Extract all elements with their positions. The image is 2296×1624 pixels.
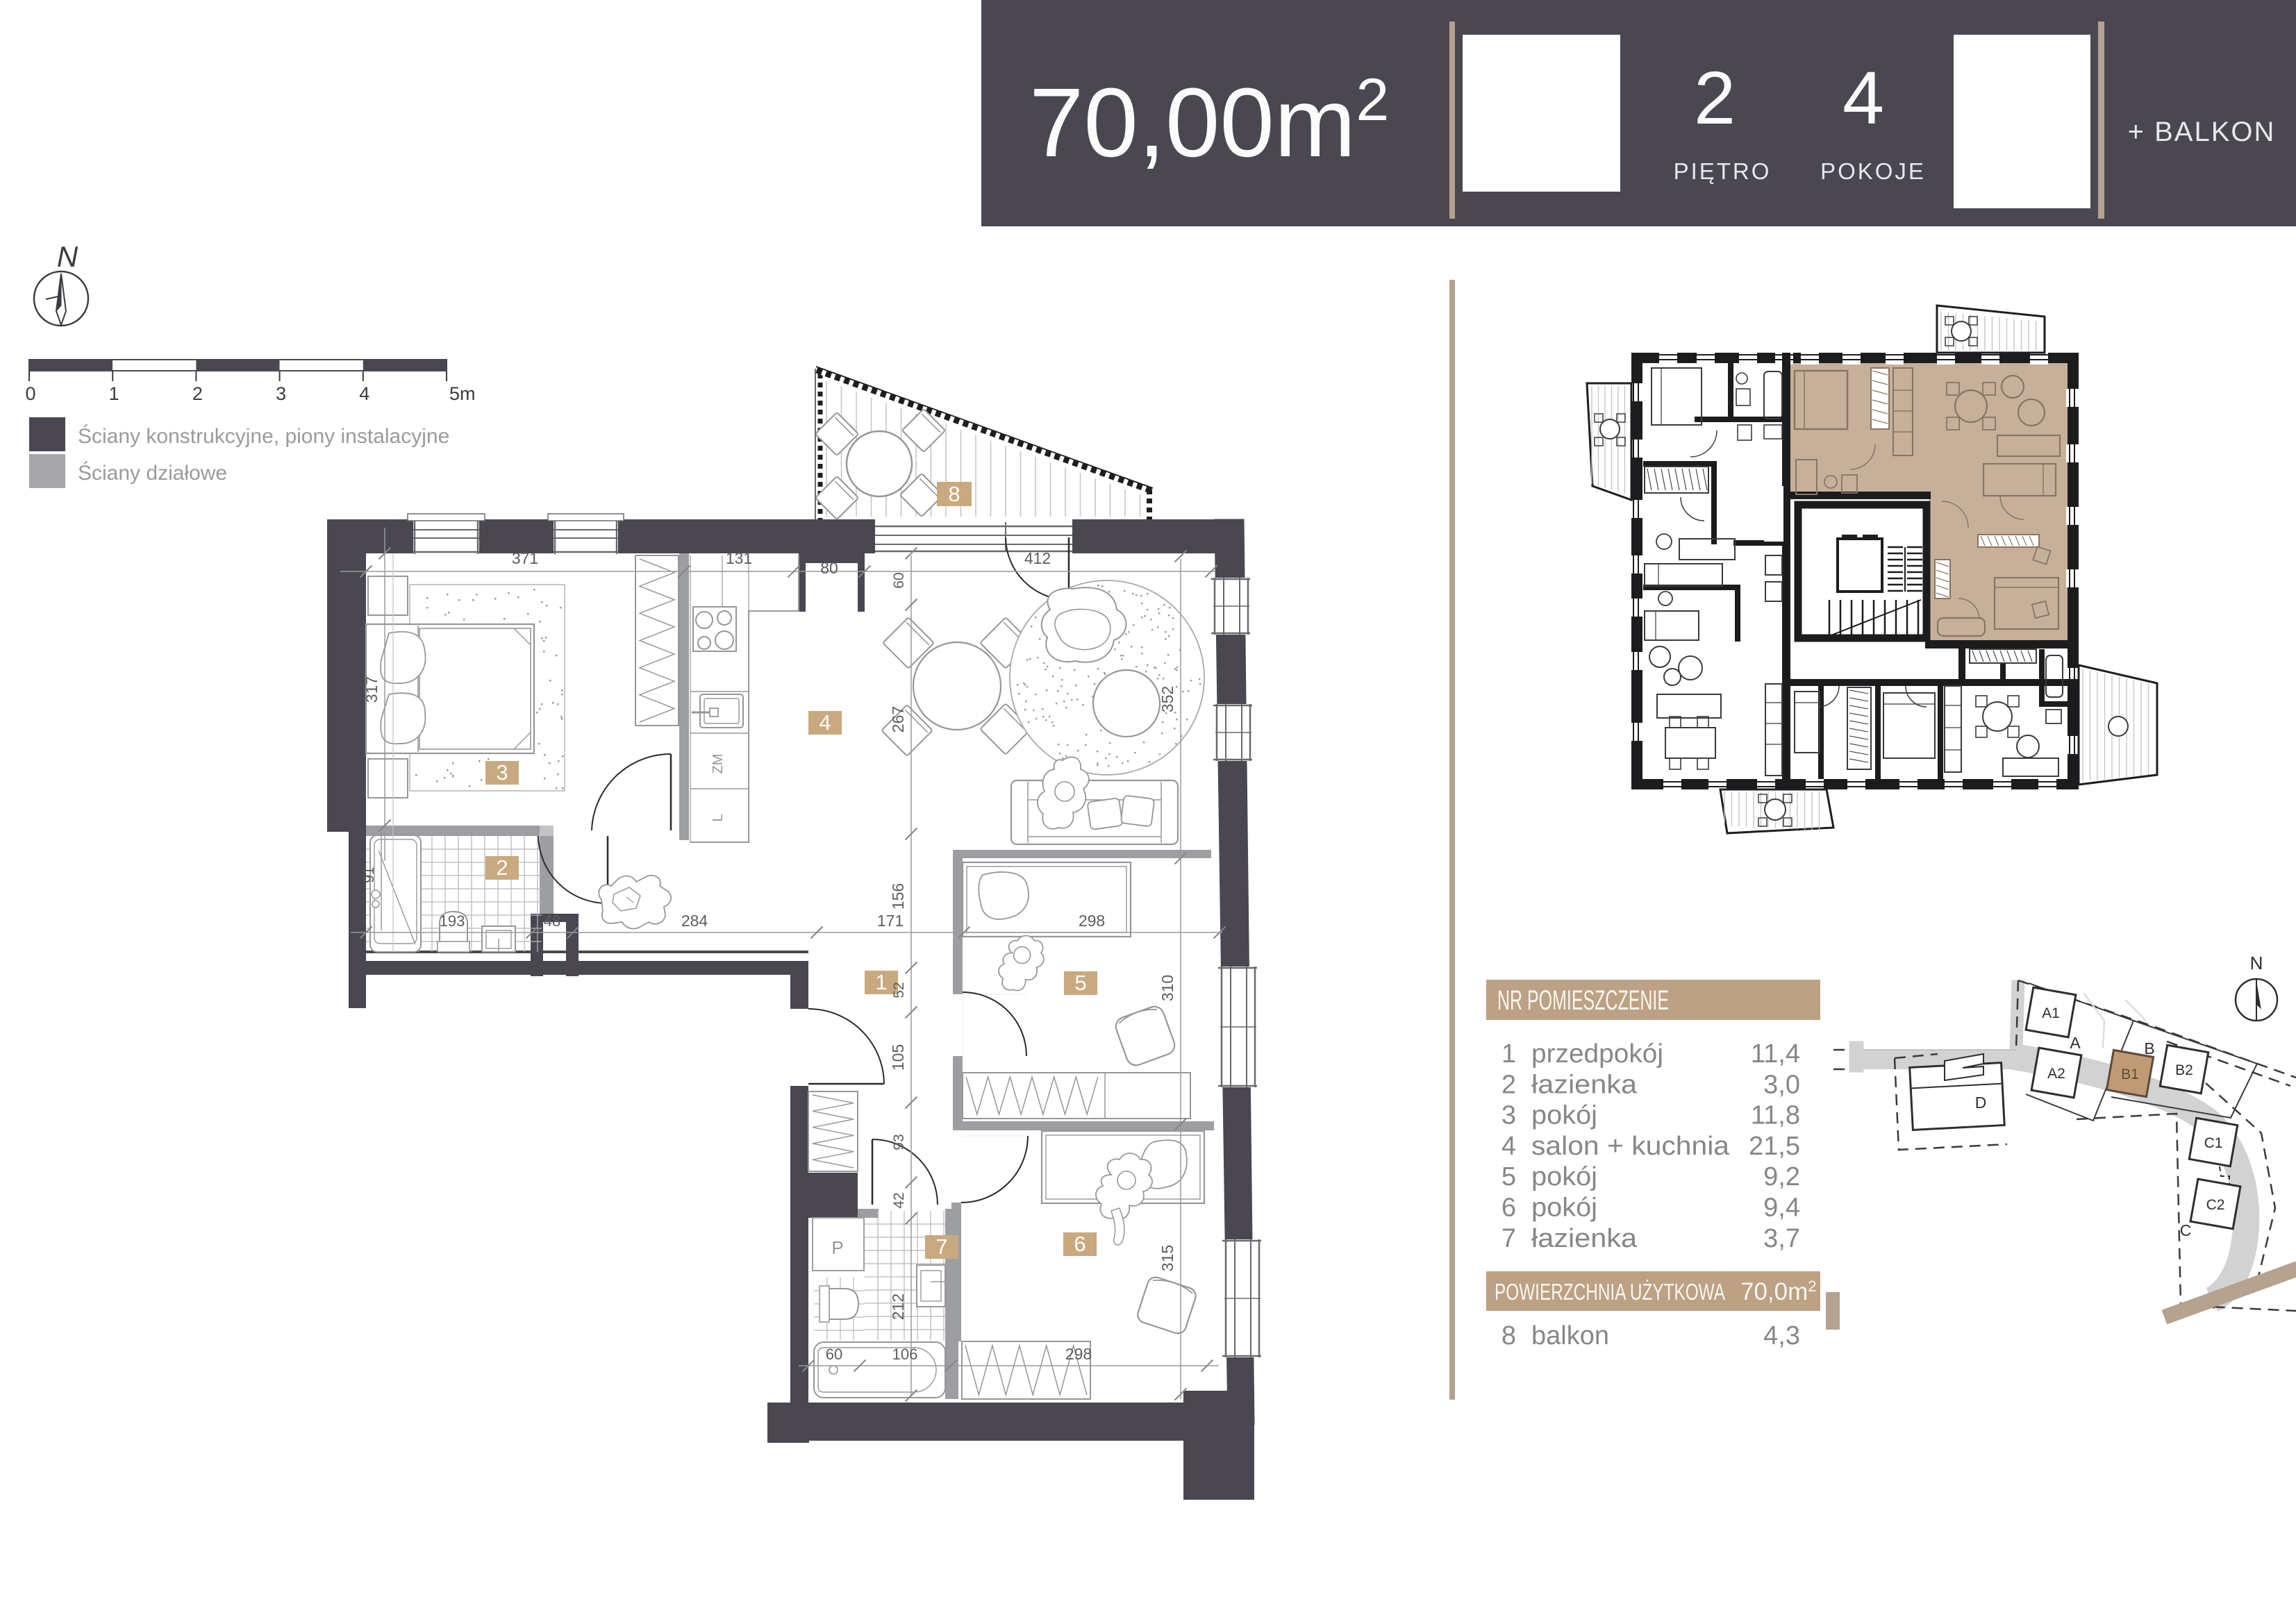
svg-text:B: B (2144, 1039, 2154, 1057)
svg-text:A2: A2 (2047, 1066, 2065, 1082)
svg-text:80: 80 (820, 559, 838, 577)
svg-text:9,4: 9,4 (1763, 1194, 1800, 1223)
svg-text:70,0m2: 70,0m2 (1740, 1278, 1817, 1305)
svg-text:52: 52 (891, 982, 907, 998)
svg-text:6: 6 (1501, 1194, 1516, 1223)
svg-text:łazienka: łazienka (1531, 1070, 1638, 1099)
svg-text:42: 42 (891, 1192, 907, 1208)
svg-text:PIĘTRO: PIĘTRO (1674, 158, 1772, 184)
svg-text:A1: A1 (2042, 1005, 2060, 1021)
svg-text:ZM: ZM (710, 754, 726, 774)
svg-text:A: A (2070, 1034, 2081, 1052)
svg-text:4: 4 (819, 710, 831, 735)
svg-text:171: 171 (877, 912, 904, 930)
svg-text:371: 371 (512, 549, 538, 567)
svg-text:0: 0 (25, 383, 35, 404)
svg-text:60: 60 (826, 1346, 842, 1363)
svg-text:5: 5 (1074, 971, 1086, 995)
svg-text:N: N (2250, 953, 2263, 973)
svg-text:21,5: 21,5 (1749, 1132, 1800, 1161)
svg-text:Ściany konstrukcyjne, piony in: Ściany konstrukcyjne, piony instalacyjne (78, 424, 449, 448)
svg-text:7: 7 (1501, 1224, 1516, 1253)
svg-text:salon + kuchnia: salon + kuchnia (1531, 1132, 1730, 1161)
svg-text:+ BALKON: + BALKON (2128, 117, 2276, 147)
svg-text:2: 2 (496, 855, 508, 880)
svg-text:315: 315 (1158, 1245, 1176, 1271)
svg-text:przedpokój: przedpokój (1531, 1039, 1663, 1069)
svg-text:193: 193 (440, 912, 465, 930)
svg-text:C2: C2 (2206, 1197, 2225, 1213)
svg-text:L: L (710, 814, 726, 821)
svg-text:1: 1 (109, 383, 119, 404)
svg-text:5m: 5m (449, 383, 476, 404)
svg-text:3,0: 3,0 (1763, 1070, 1800, 1099)
svg-text:267: 267 (889, 706, 907, 733)
svg-text:60: 60 (891, 572, 907, 588)
svg-text:298: 298 (1079, 912, 1105, 930)
svg-text:4: 4 (1501, 1132, 1516, 1161)
svg-text:NR POMIESZCZENIE: NR POMIESZCZENIE (1497, 985, 1669, 1016)
svg-text:6: 6 (1074, 1232, 1085, 1256)
svg-text:balkon: balkon (1531, 1321, 1609, 1350)
svg-text:93: 93 (891, 1134, 907, 1150)
svg-text:106: 106 (892, 1346, 918, 1363)
svg-text:105: 105 (889, 1044, 907, 1071)
svg-text:7: 7 (935, 1234, 947, 1259)
svg-text:8: 8 (948, 482, 960, 506)
svg-text:Ściany działowe: Ściany działowe (78, 461, 227, 485)
svg-text:P: P (831, 1237, 843, 1258)
svg-text:3: 3 (1501, 1101, 1516, 1130)
svg-text:B1: B1 (2121, 1066, 2139, 1082)
svg-text:156: 156 (889, 883, 907, 910)
svg-text:łazienka: łazienka (1531, 1224, 1638, 1253)
svg-text:412: 412 (1024, 549, 1051, 567)
svg-text:48: 48 (544, 912, 560, 930)
svg-text:4: 4 (1842, 56, 1884, 140)
svg-text:131: 131 (726, 549, 752, 567)
svg-text:11,8: 11,8 (1751, 1101, 1800, 1130)
svg-text:11,4: 11,4 (1751, 1039, 1800, 1069)
svg-text:2: 2 (192, 383, 203, 404)
svg-text:POWIERZCHNIA UŻYTKOWA: POWIERZCHNIA UŻYTKOWA (1495, 1279, 1725, 1305)
svg-text:3: 3 (276, 383, 286, 404)
svg-text:3,7: 3,7 (1763, 1224, 1800, 1253)
svg-text:POKOJE: POKOJE (1820, 158, 1926, 184)
svg-text:pokój: pokój (1531, 1101, 1597, 1130)
svg-text:70,00m2: 70,00m2 (1029, 67, 1389, 177)
svg-text:9,2: 9,2 (1763, 1162, 1800, 1191)
svg-text:3: 3 (496, 760, 508, 785)
svg-text:D: D (1975, 1094, 1987, 1112)
svg-text:317: 317 (363, 676, 381, 703)
svg-text:1: 1 (875, 970, 887, 994)
svg-text:C1: C1 (2204, 1135, 2223, 1151)
svg-text:pokój: pokój (1531, 1194, 1597, 1223)
svg-text:4,3: 4,3 (1763, 1321, 1800, 1350)
svg-text:298: 298 (1065, 1345, 1092, 1363)
svg-text:212: 212 (889, 1294, 907, 1320)
svg-text:B2: B2 (2175, 1062, 2193, 1078)
svg-text:284: 284 (681, 912, 708, 930)
svg-text:5: 5 (1501, 1162, 1516, 1191)
svg-text:8: 8 (1501, 1321, 1516, 1350)
svg-text:pokój: pokój (1531, 1162, 1597, 1191)
svg-text:352: 352 (1158, 686, 1176, 712)
svg-text:4: 4 (359, 383, 369, 404)
svg-text:310: 310 (1158, 975, 1176, 1001)
svg-text:1: 1 (1501, 1039, 1516, 1069)
svg-text:2: 2 (1501, 1070, 1516, 1099)
svg-text:91: 91 (361, 867, 377, 882)
svg-text:N: N (57, 240, 78, 273)
svg-text:2: 2 (1694, 56, 1736, 140)
svg-text:C: C (2180, 1221, 2192, 1239)
